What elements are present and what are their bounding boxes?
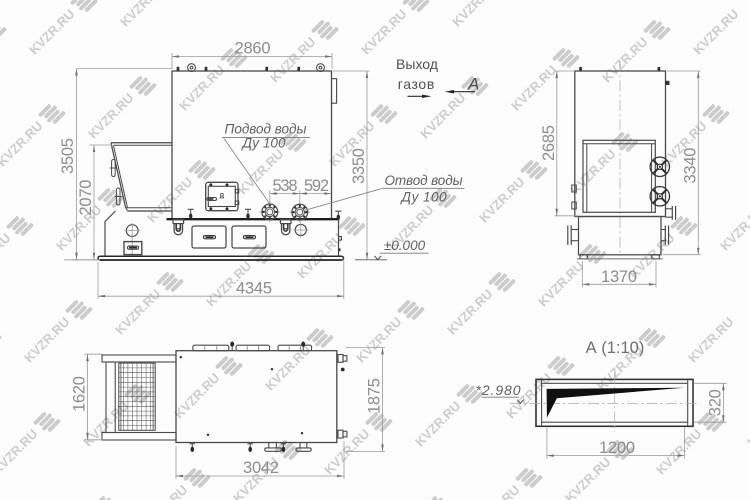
svg-text:2685: 2685 xyxy=(540,125,558,161)
svg-text:±0.000: ±0.000 xyxy=(384,238,426,253)
svg-text:592: 592 xyxy=(304,177,329,195)
svg-text:2860: 2860 xyxy=(235,40,271,58)
svg-text:1200: 1200 xyxy=(599,439,635,457)
svg-text:3505: 3505 xyxy=(59,138,77,174)
svg-text:Ду 100: Ду 100 xyxy=(400,190,447,205)
svg-text:Отвод воды: Отвод воды xyxy=(385,173,463,188)
svg-text:538: 538 xyxy=(273,177,298,195)
svg-text:1875: 1875 xyxy=(365,378,383,414)
svg-text:1620: 1620 xyxy=(70,376,88,412)
svg-text:1370: 1370 xyxy=(601,268,637,286)
svg-text:А (1:10): А (1:10) xyxy=(586,339,645,357)
svg-text:Подвод воды: Подвод воды xyxy=(225,122,307,137)
svg-text:A: A xyxy=(467,75,479,94)
svg-text:3350: 3350 xyxy=(350,148,368,184)
svg-text:3340: 3340 xyxy=(681,148,699,184)
svg-text:Выход: Выход xyxy=(396,56,438,72)
svg-text:3042: 3042 xyxy=(243,459,279,477)
svg-text:2070: 2070 xyxy=(77,180,95,216)
svg-text:*2.980: *2.980 xyxy=(476,382,521,398)
svg-text:газов: газов xyxy=(398,76,435,92)
svg-text:320: 320 xyxy=(706,389,724,416)
svg-text:4345: 4345 xyxy=(236,280,272,298)
